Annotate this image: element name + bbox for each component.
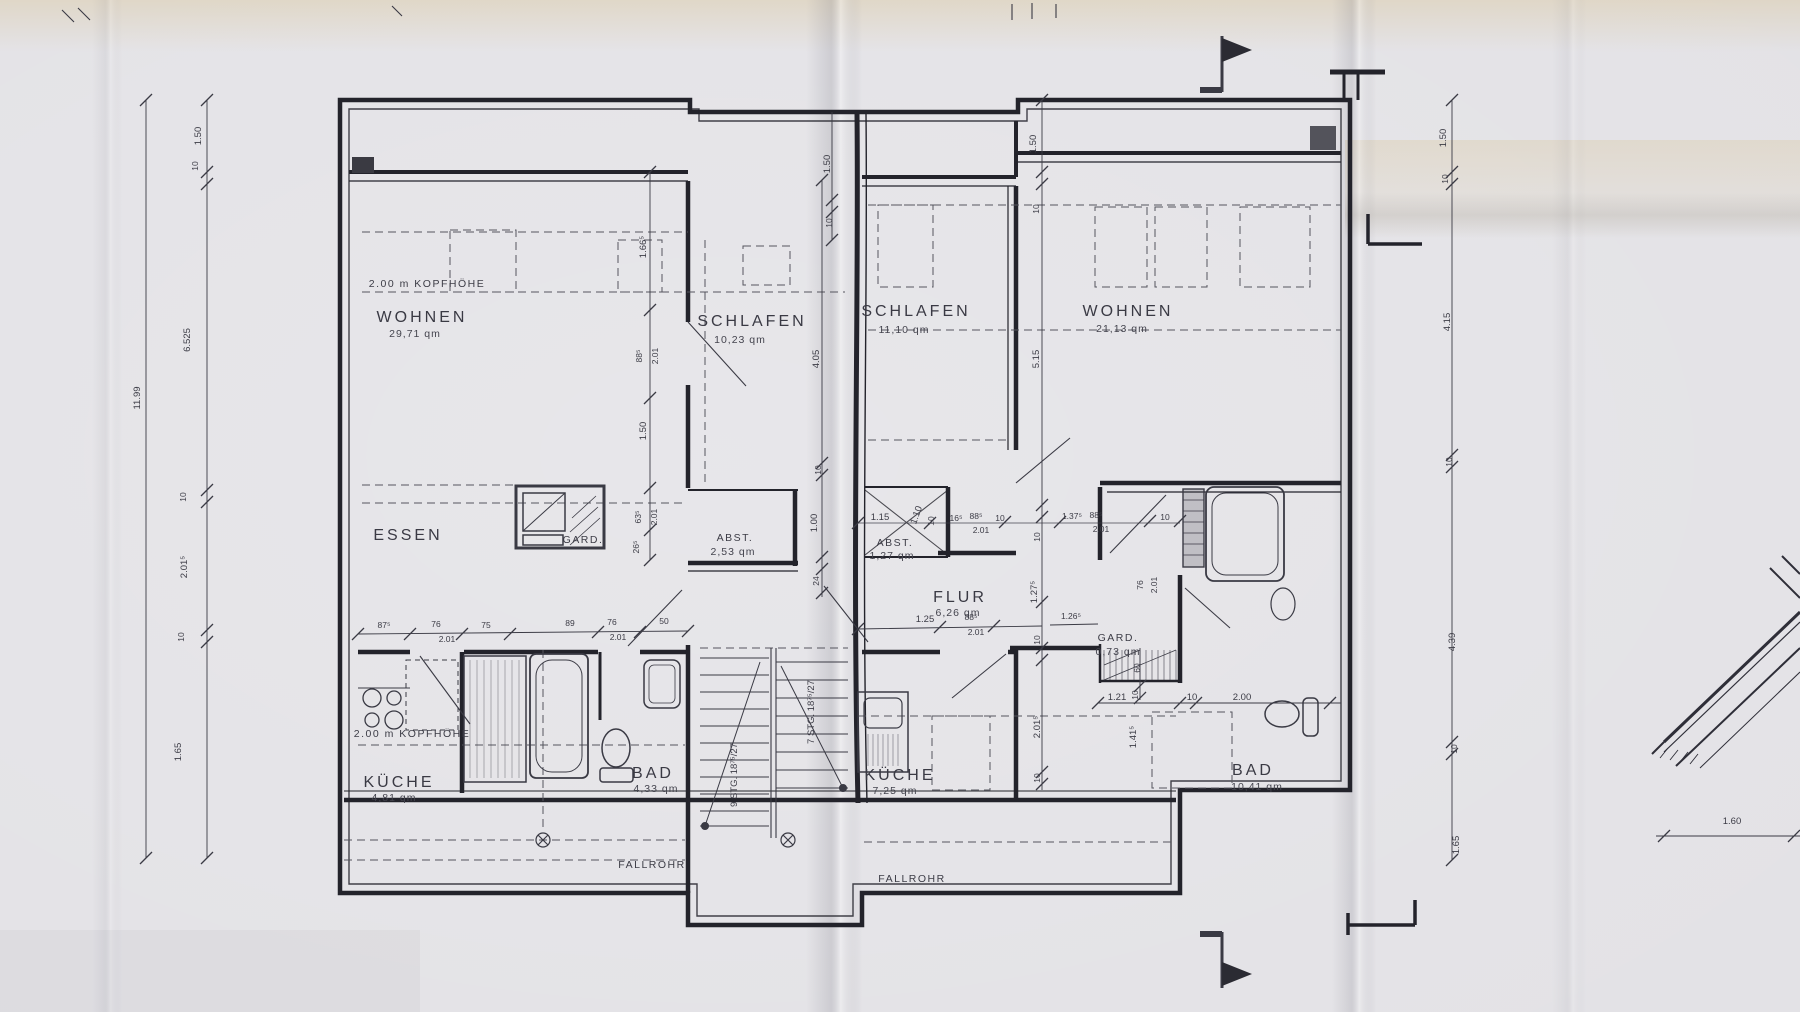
dim: 1.50 bbox=[193, 127, 204, 146]
dim: 1.65 bbox=[173, 743, 184, 762]
room-label-schlafen-right: SCHLAFEN bbox=[861, 303, 970, 320]
annotation-stairs-7: 7 STG. 18⁷⁵/27 bbox=[806, 680, 817, 744]
dim: 1.50 bbox=[1438, 129, 1449, 148]
dim: 1.21 bbox=[1108, 692, 1127, 703]
blueprint-photo: WOHNEN 29,71 qm SCHLAFEN 10,23 qm SCHLAF… bbox=[0, 0, 1800, 1012]
dim: 10 bbox=[1032, 532, 1042, 542]
room-label-flur: FLUR bbox=[933, 589, 987, 606]
room-area-bad-right: 10,41 qm bbox=[1231, 781, 1283, 793]
annotation-stairs-9: 9 STG. 18⁷⁵/27 bbox=[729, 743, 740, 807]
dim: 10 bbox=[824, 218, 834, 228]
room-label-kueche-left: KÜCHE bbox=[363, 773, 434, 791]
dim: 5.15 bbox=[1031, 350, 1042, 369]
dim: 89 bbox=[565, 618, 575, 628]
dim: 2.01 bbox=[968, 627, 985, 637]
dim: 63⁵ bbox=[633, 511, 643, 524]
dim: 88⁵ bbox=[970, 511, 983, 521]
dim: 2.01 bbox=[1149, 576, 1159, 593]
dim: 10 bbox=[178, 492, 188, 502]
paper-background bbox=[0, 0, 1800, 1012]
room-label-gard-right: GARD. bbox=[1098, 632, 1139, 644]
annotation-fallrohr-right: FALLROHR bbox=[878, 873, 945, 885]
room-label-essen: ESSEN bbox=[373, 527, 442, 544]
dim: 26⁵ bbox=[631, 541, 641, 554]
dim: 1.50 bbox=[1028, 135, 1039, 154]
dim: 10 bbox=[1130, 690, 1140, 700]
dim: 88⁵ bbox=[1090, 510, 1103, 520]
dim: 10 bbox=[1444, 457, 1454, 467]
dim: 1.26⁵ bbox=[1061, 611, 1081, 621]
dim: 6.525 bbox=[182, 328, 193, 352]
room-label-bad-left: BAD bbox=[632, 765, 674, 782]
dim: 1.37⁵ bbox=[1062, 511, 1082, 521]
dim: 1.66⁵ bbox=[638, 236, 649, 258]
dim: 10 bbox=[1032, 773, 1042, 783]
annotation-kopfhoehe-top: 2.00 m KOPFHÖHE bbox=[369, 278, 485, 290]
dim: 1.50 bbox=[638, 422, 649, 441]
room-label-kueche-right: KÜCHE bbox=[864, 766, 935, 784]
dim: 75 bbox=[481, 620, 491, 630]
dim: 88⁵ bbox=[965, 612, 978, 622]
room-area-schlafen-right: 11,10 qm bbox=[879, 324, 930, 336]
dim: 2.01 bbox=[649, 508, 659, 525]
room-area-schlafen-left: 10,23 qm bbox=[714, 334, 766, 346]
dim: 1.41⁵ bbox=[1128, 726, 1139, 748]
dim: 1.27⁵ bbox=[1029, 581, 1040, 603]
dim: 10 bbox=[1449, 744, 1459, 754]
dim: 76 bbox=[607, 617, 617, 627]
dim: 10 bbox=[1160, 512, 1170, 522]
room-area-wohnen-right: 21,13 qm bbox=[1096, 323, 1148, 335]
dim: 50 bbox=[659, 616, 669, 626]
dim: 1.25 bbox=[916, 614, 935, 625]
dim: 60 bbox=[1132, 663, 1142, 673]
dim: 10 bbox=[995, 513, 1005, 523]
dim: 2.00 bbox=[1233, 692, 1252, 703]
dim: 1.65 bbox=[1451, 836, 1462, 855]
room-label-wohnen-right: WOHNEN bbox=[1083, 303, 1174, 320]
dim: 87⁵ bbox=[378, 620, 391, 630]
dim: 1.00 bbox=[809, 514, 820, 533]
room-label-bad-right: BAD bbox=[1232, 762, 1274, 779]
dim: 4.39 bbox=[1447, 633, 1458, 652]
room-area-wohnen-left: 29,71 qm bbox=[389, 328, 441, 340]
dim: 10 bbox=[926, 516, 936, 526]
dim: 4.15 bbox=[1442, 313, 1453, 332]
dim: 76 bbox=[431, 619, 441, 629]
dim: 10 bbox=[1031, 204, 1041, 214]
dim: 2.01 bbox=[650, 347, 660, 364]
annotation-fallrohr-left: FALLROHR bbox=[618, 859, 685, 871]
dim: 2.01 bbox=[1093, 524, 1110, 534]
dim: 24 bbox=[811, 576, 821, 586]
room-area-abst-left: 2,53 qm bbox=[711, 546, 756, 558]
dim: 10 bbox=[1187, 692, 1198, 703]
room-area-kueche-right: 7,25 qm bbox=[873, 785, 918, 797]
dim: 10 bbox=[176, 632, 186, 642]
room-area-gard-right: 0,73 qm bbox=[1096, 646, 1141, 658]
dim: 1.15 bbox=[871, 512, 890, 523]
dim: 10 bbox=[1032, 635, 1042, 645]
room-label-gard-left: GARD. bbox=[563, 534, 604, 546]
dim: 2.01 bbox=[439, 634, 456, 644]
room-label-schlafen-left: SCHLAFEN bbox=[697, 313, 806, 330]
dim: 88⁵ bbox=[634, 350, 644, 363]
dim: 2.01⁵ bbox=[179, 556, 190, 578]
dim: 2.01 bbox=[973, 525, 990, 535]
floor-plan-svg: WOHNEN 29,71 qm SCHLAFEN 10,23 qm SCHLAF… bbox=[0, 0, 1800, 1012]
room-label-abst-right: ABST. bbox=[877, 537, 914, 549]
dim: 10 bbox=[813, 465, 823, 475]
room-label-wohnen-left: WOHNEN bbox=[377, 309, 468, 326]
dim: 16⁵ bbox=[950, 513, 963, 523]
room-area-abst-right: 1,27 qm bbox=[870, 550, 915, 562]
dim: 2.01⁵ bbox=[1032, 716, 1043, 738]
dim-left-outer: 11.99 bbox=[132, 386, 143, 409]
dim: 1.50 bbox=[822, 155, 833, 174]
room-area-bad-left: 4,33 qm bbox=[634, 783, 679, 795]
dim-detail: 1.60 bbox=[1723, 816, 1742, 827]
dim: 10 bbox=[190, 161, 200, 171]
annotation-kopfhoehe-bottom: 2.00 m KOPFHÖHE bbox=[354, 728, 470, 740]
room-area-kueche-left: 4,81 qm bbox=[372, 792, 417, 804]
dim: 76 bbox=[1135, 580, 1145, 590]
room-label-abst-left: ABST. bbox=[717, 532, 754, 544]
dim: 2.01 bbox=[610, 632, 627, 642]
dim: 4.05 bbox=[811, 350, 822, 369]
dim: 10 bbox=[1440, 174, 1450, 184]
